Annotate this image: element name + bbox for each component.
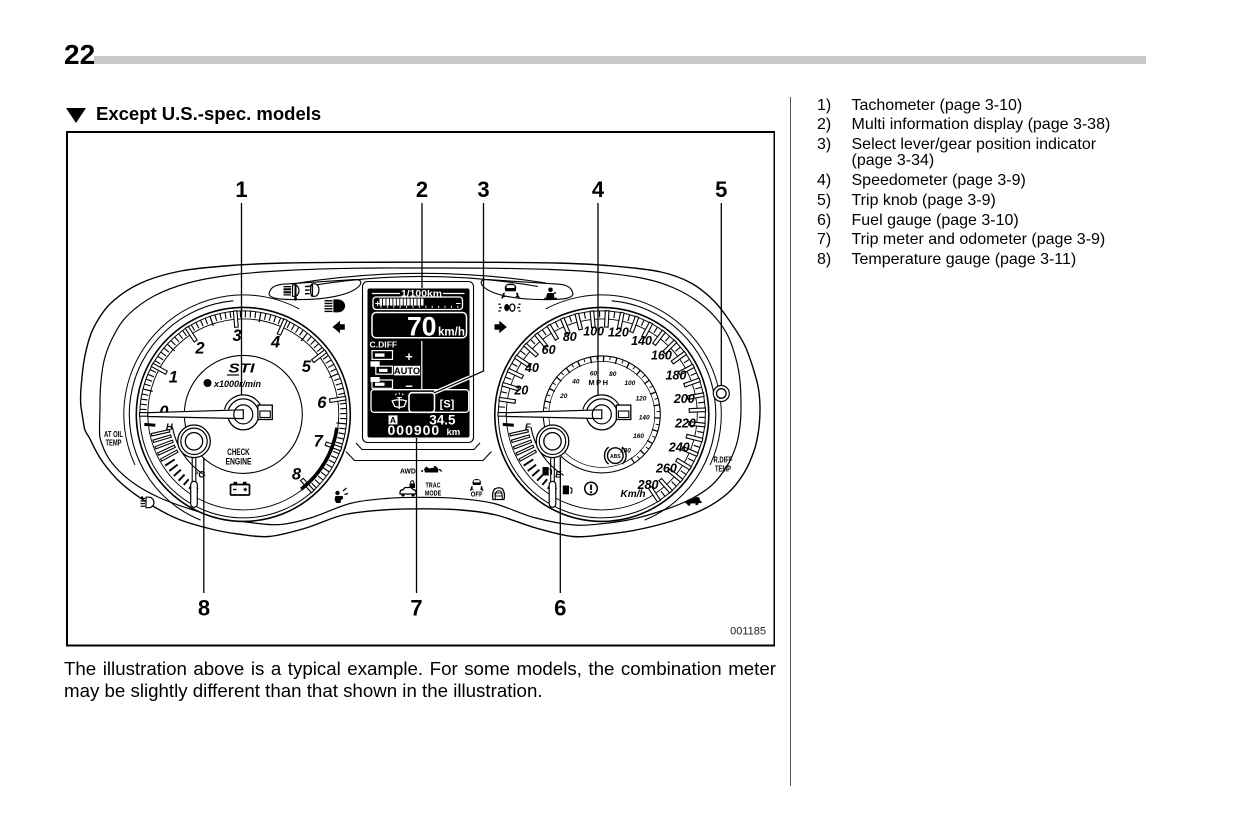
svg-text:40: 40 — [571, 378, 580, 385]
svg-text:H: H — [165, 422, 173, 433]
svg-text:AWD: AWD — [400, 467, 416, 476]
svg-text:OFF: OFF — [470, 490, 483, 499]
svg-text:CHECK: CHECK — [227, 447, 250, 457]
svg-text:80: 80 — [562, 330, 576, 344]
svg-text:160: 160 — [650, 349, 671, 363]
svg-text:6: 6 — [554, 596, 566, 621]
svg-text:160: 160 — [633, 433, 644, 440]
svg-text:MPH: MPH — [588, 378, 609, 387]
svg-text:+: + — [375, 299, 380, 309]
svg-text:000900: 000900 — [387, 422, 440, 438]
svg-text:TEMP: TEMP — [105, 439, 121, 448]
svg-text:6: 6 — [317, 394, 327, 412]
svg-text:4: 4 — [270, 334, 280, 352]
svg-text:4: 4 — [591, 177, 604, 202]
svg-text:001185: 001185 — [730, 626, 766, 638]
svg-text:240: 240 — [667, 441, 689, 455]
svg-text:x1000r/min: x1000r/min — [213, 379, 262, 389]
svg-text:140: 140 — [631, 334, 652, 348]
svg-text:100: 100 — [583, 324, 604, 338]
svg-text:5: 5 — [715, 177, 727, 202]
svg-text:100: 100 — [624, 380, 635, 387]
svg-text:260: 260 — [654, 462, 676, 476]
svg-text:8: 8 — [291, 465, 301, 483]
svg-text:TEMP: TEMP — [715, 465, 731, 474]
svg-text:km/h: km/h — [438, 327, 465, 339]
svg-text:2: 2 — [415, 177, 427, 202]
svg-text:km: km — [446, 427, 460, 438]
svg-text:3: 3 — [232, 327, 241, 345]
svg-text:140: 140 — [638, 415, 649, 422]
svg-text:7: 7 — [410, 596, 422, 621]
svg-text:AUTO: AUTO — [393, 366, 419, 376]
svg-text:R.DIFF: R.DIFF — [713, 456, 732, 465]
svg-text:+: + — [405, 349, 413, 364]
svg-text:20: 20 — [559, 393, 568, 400]
svg-text:120: 120 — [635, 396, 646, 403]
svg-text:7: 7 — [313, 433, 323, 451]
svg-text:120: 120 — [607, 326, 628, 340]
svg-text:60: 60 — [541, 343, 555, 357]
svg-text:220: 220 — [673, 417, 695, 431]
svg-text:1: 1 — [235, 177, 247, 202]
svg-text:20: 20 — [513, 384, 528, 398]
svg-text:8: 8 — [197, 596, 209, 621]
svg-text:1: 1 — [168, 368, 177, 386]
svg-text:3: 3 — [477, 177, 489, 202]
svg-text:ENGINE: ENGINE — [225, 457, 251, 467]
svg-text:F: F — [524, 422, 530, 433]
svg-text:C.DIFF: C.DIFF — [369, 340, 397, 350]
svg-text:−: − — [405, 379, 413, 394]
svg-text:[S]: [S] — [439, 399, 454, 411]
svg-text:200: 200 — [672, 392, 694, 406]
svg-text:5: 5 — [301, 358, 311, 376]
svg-text:60: 60 — [589, 370, 597, 377]
svg-text:80: 80 — [609, 371, 617, 378]
svg-text:2: 2 — [194, 340, 204, 358]
svg-text:MODE: MODE — [424, 489, 441, 498]
svg-text:180: 180 — [665, 369, 686, 383]
svg-text:70: 70 — [407, 311, 436, 341]
svg-text:40: 40 — [524, 361, 539, 375]
svg-text:Km/h: Km/h — [620, 489, 645, 500]
svg-text:E: E — [555, 469, 562, 480]
svg-text:ABS: ABS — [610, 454, 621, 460]
